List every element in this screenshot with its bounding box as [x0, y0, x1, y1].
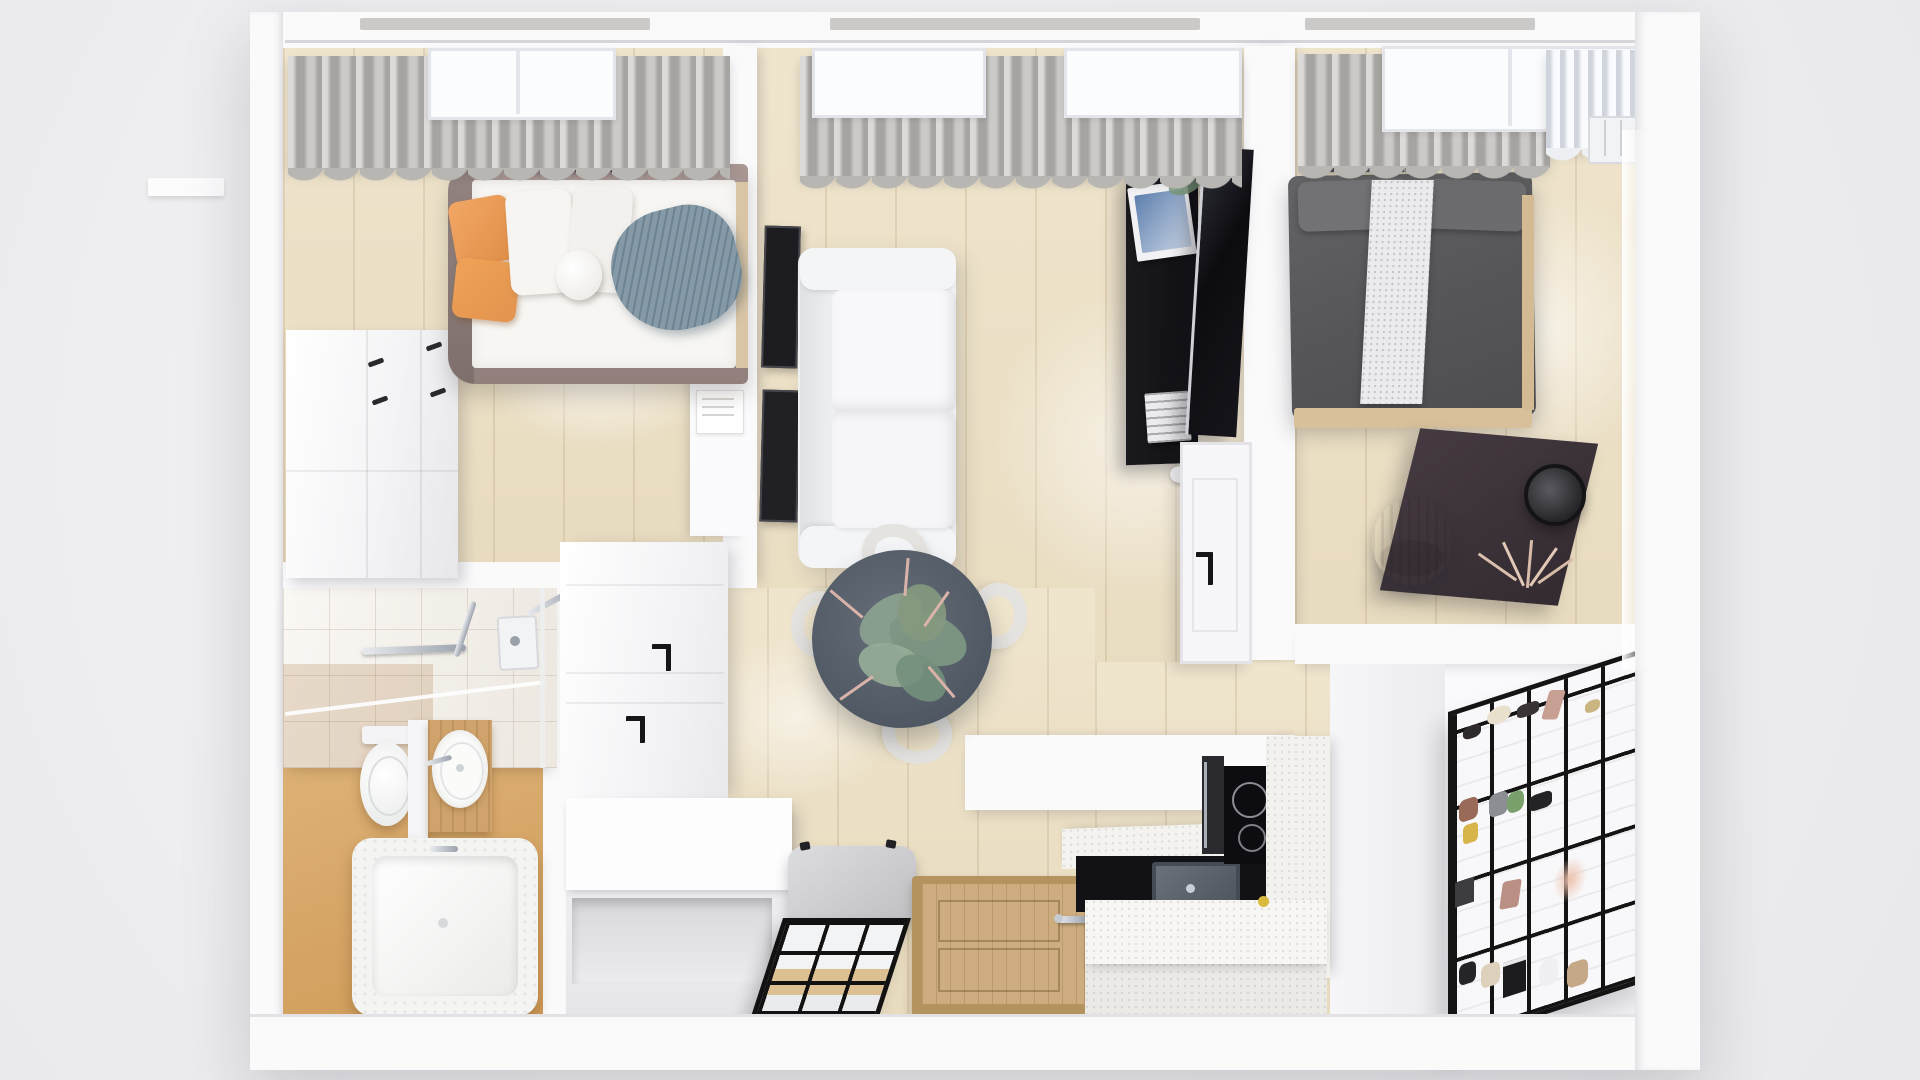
shower-mixer-knob [510, 636, 520, 646]
closet-flats-black-2 [1459, 960, 1476, 987]
bathtub-drain [438, 918, 448, 928]
bed2-knit-runner [1360, 180, 1434, 404]
closet-clutch-pink [1541, 690, 1566, 719]
dresser [286, 330, 458, 578]
knot-cushion [556, 250, 602, 300]
cushion-clip-2 [885, 839, 896, 849]
cushion-clip-1 [799, 841, 810, 851]
window-bar-bedroom2 [1508, 46, 1512, 126]
dresser-seam-h [286, 470, 458, 472]
skylight-bedroom1 [428, 48, 616, 120]
desk-paper-line-2 [702, 406, 734, 408]
curtain-top-edge-3 [1305, 18, 1535, 30]
closet-flats-black [1529, 789, 1552, 812]
art-frame-2 [759, 390, 800, 523]
entry-door-panel-1 [938, 900, 1060, 942]
wardrobe-handle-2 [626, 716, 645, 743]
cooktop-burner-1 [1232, 782, 1268, 818]
closet-wallet-pink [1499, 878, 1522, 909]
wall-bedroom2-closet [1295, 624, 1635, 664]
closet-jug-white [1539, 955, 1558, 988]
round-mirror [1524, 464, 1586, 526]
closet-books-black [1503, 956, 1526, 998]
radiator-fin-1 [1604, 120, 1606, 156]
skylight-bar-bedroom1 [516, 48, 520, 114]
book-stack [1144, 391, 1191, 444]
closet-bag-brown [1459, 795, 1478, 823]
window-rail [285, 40, 1665, 43]
art-frame-1 [761, 226, 801, 369]
sofa-backrest [800, 256, 836, 560]
closet-heels-dark [1517, 699, 1539, 719]
desk-chair-seat-shade [1380, 540, 1444, 576]
sofa-armrest-top [800, 248, 956, 290]
sofa-seat-cushion-1 [832, 290, 954, 410]
hall-bench-shelf-recess [572, 898, 772, 984]
dresser-seam-v1 [366, 330, 368, 578]
desk-paper-line-3 [702, 414, 734, 416]
cooktop-burner-2 [1238, 824, 1266, 852]
entry-door-handle-rose [1054, 914, 1063, 923]
toilet-seat-ring [368, 756, 410, 816]
bed2-frame-side [1522, 195, 1534, 410]
shower-glass-side [540, 588, 545, 768]
window-sill-stub [148, 178, 224, 196]
magazine-cover [1134, 189, 1192, 253]
bath-partition [408, 720, 428, 840]
closet-bag-yellow [1463, 821, 1478, 845]
desk-paper-line-1 [702, 398, 734, 400]
wardrobe-seam-3 [566, 702, 724, 704]
closet-shoes-black-1 [1463, 722, 1481, 741]
wall-left [250, 12, 283, 1070]
lemon [1258, 896, 1269, 907]
sofa-seat-cushion-2 [832, 410, 954, 528]
closet-bag-cream-2 [1481, 960, 1500, 989]
wall-right [1635, 12, 1700, 1070]
closet-sandal-gold [1585, 698, 1600, 715]
closet-heels-tan [1567, 958, 1588, 990]
skylight-living-1 [812, 48, 986, 118]
closet-grid-partition [1448, 646, 1650, 1046]
bathtub-faucet [430, 846, 458, 852]
wardrobe-seam-2 [566, 672, 724, 674]
hall-bench-top [566, 798, 792, 890]
closet-shoes-gray [1489, 790, 1508, 819]
curtain-top-edge-2 [830, 18, 1200, 30]
closet-box-dark [1455, 877, 1474, 908]
radiator-fin-2 [1620, 120, 1622, 156]
sink-faucet [1186, 884, 1195, 893]
entry-door-panel-2 [938, 948, 1060, 992]
skylight-living-2 [1064, 48, 1242, 118]
wall-bottom [250, 1014, 1700, 1070]
wardrobe-handle-1 [652, 644, 671, 671]
closet-plant [1507, 788, 1524, 815]
closet-heels-pink-glow [1553, 852, 1587, 907]
closet-bag-cream [1487, 703, 1511, 728]
desk-paper [696, 390, 744, 434]
curtain-top-edge-1 [360, 18, 650, 30]
interior-door-handle [1196, 552, 1213, 585]
basin-drain [456, 764, 464, 772]
apartment-floorplan-render: Top-down 3D render of a compact apartmen… [0, 0, 1920, 1080]
oven-handle [1204, 762, 1207, 848]
bed2-frame-foot [1294, 408, 1532, 428]
kitchen-island-top [1085, 900, 1327, 964]
wardrobe-seam-1 [566, 584, 724, 586]
wall-kitchen-closet [1330, 664, 1445, 1018]
floor-cushion [788, 846, 916, 924]
dresser-seam-v2 [420, 330, 422, 578]
